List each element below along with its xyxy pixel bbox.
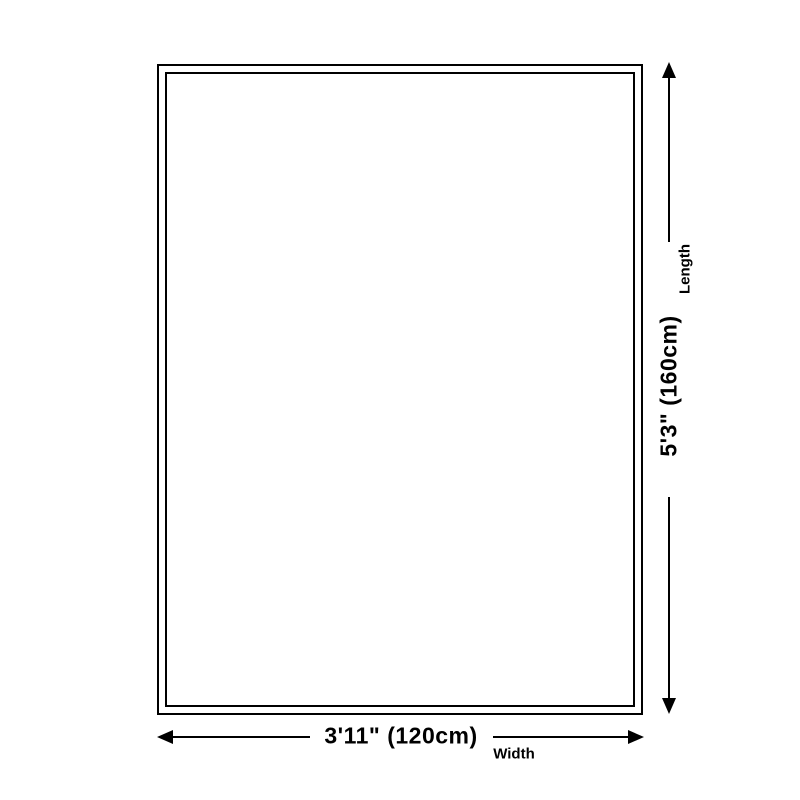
- arrow-right-icon: [628, 730, 644, 744]
- arrow-left-icon: [157, 730, 173, 744]
- width-dimension-line-right: [493, 736, 628, 738]
- rug-outline-outer: [157, 64, 643, 715]
- width-dimension-label: Width: [493, 746, 535, 763]
- length-dimension-label: Length: [677, 244, 694, 294]
- length-dimension-value: 5'3" (160cm): [656, 315, 683, 456]
- width-dimension-value: 3'11" (120cm): [324, 723, 477, 750]
- rug-outline-inner: [165, 72, 635, 707]
- length-dimension-line-top: [668, 76, 670, 242]
- width-dimension-line-left: [173, 736, 310, 738]
- arrow-down-icon: [662, 698, 676, 714]
- length-dimension-line-bottom: [668, 497, 670, 699]
- dimension-diagram: Length 5'3" (160cm) 3'11" (120cm) Width: [0, 0, 800, 800]
